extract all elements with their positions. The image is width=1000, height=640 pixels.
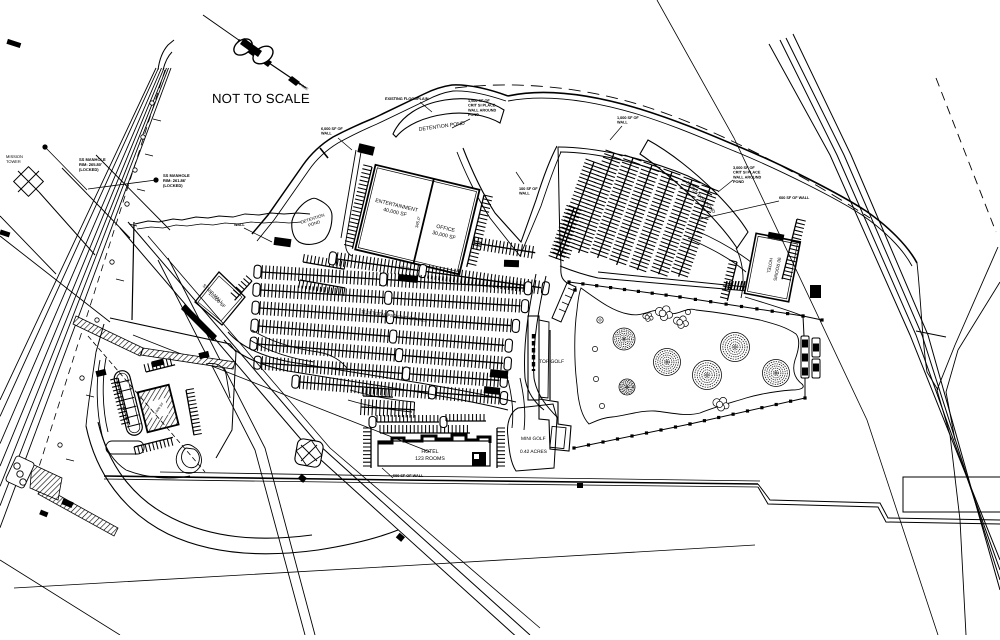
svg-text:MINI GOLF: MINI GOLF xyxy=(521,436,546,442)
svg-text:123 ROOMS: 123 ROOMS xyxy=(415,456,445,462)
svg-text:TOP GOLF: TOP GOLF xyxy=(539,359,564,365)
svg-text:WALL AROUND: WALL AROUND xyxy=(733,175,762,179)
svg-text:6,000 SF OF: 6,000 SF OF xyxy=(321,127,343,131)
svg-text:3,000 SF OF: 3,000 SF OF xyxy=(733,166,755,170)
svg-text:EXISTING FLOODPLAIN: EXISTING FLOODPLAIN xyxy=(385,97,429,101)
svg-text:CRIT SI PLACE: CRIT SI PLACE xyxy=(733,171,761,175)
svg-text:POND: POND xyxy=(468,113,479,117)
svg-text:WALL: WALL xyxy=(617,121,628,125)
svg-text:1,000 SF OF: 1,000 SF OF xyxy=(617,116,639,120)
svg-text:TOWER: TOWER xyxy=(6,159,21,164)
svg-text:WALL: WALL xyxy=(519,192,530,196)
svg-text:CRIT SI PLACE: CRIT SI PLACE xyxy=(468,104,496,108)
svg-text:WALL: WALL xyxy=(321,132,332,136)
svg-text:0.42 ACRES: 0.42 ACRES xyxy=(520,449,547,455)
svg-text:POND: POND xyxy=(733,180,744,184)
svg-text:100 SF OF: 100 SF OF xyxy=(519,187,538,191)
svg-text:WALL AROUND: WALL AROUND xyxy=(468,108,497,112)
svg-text:(LOCKED): (LOCKED) xyxy=(79,167,99,172)
svg-text:WALL: WALL xyxy=(234,223,245,227)
svg-text:1,500 SF OF: 1,500 SF OF xyxy=(468,99,490,103)
svg-text:600 SF OF WALL: 600 SF OF WALL xyxy=(779,196,810,200)
svg-text:(LOCKED): (LOCKED) xyxy=(163,183,183,188)
svg-text:NOT TO SCALE: NOT TO SCALE xyxy=(212,91,310,106)
